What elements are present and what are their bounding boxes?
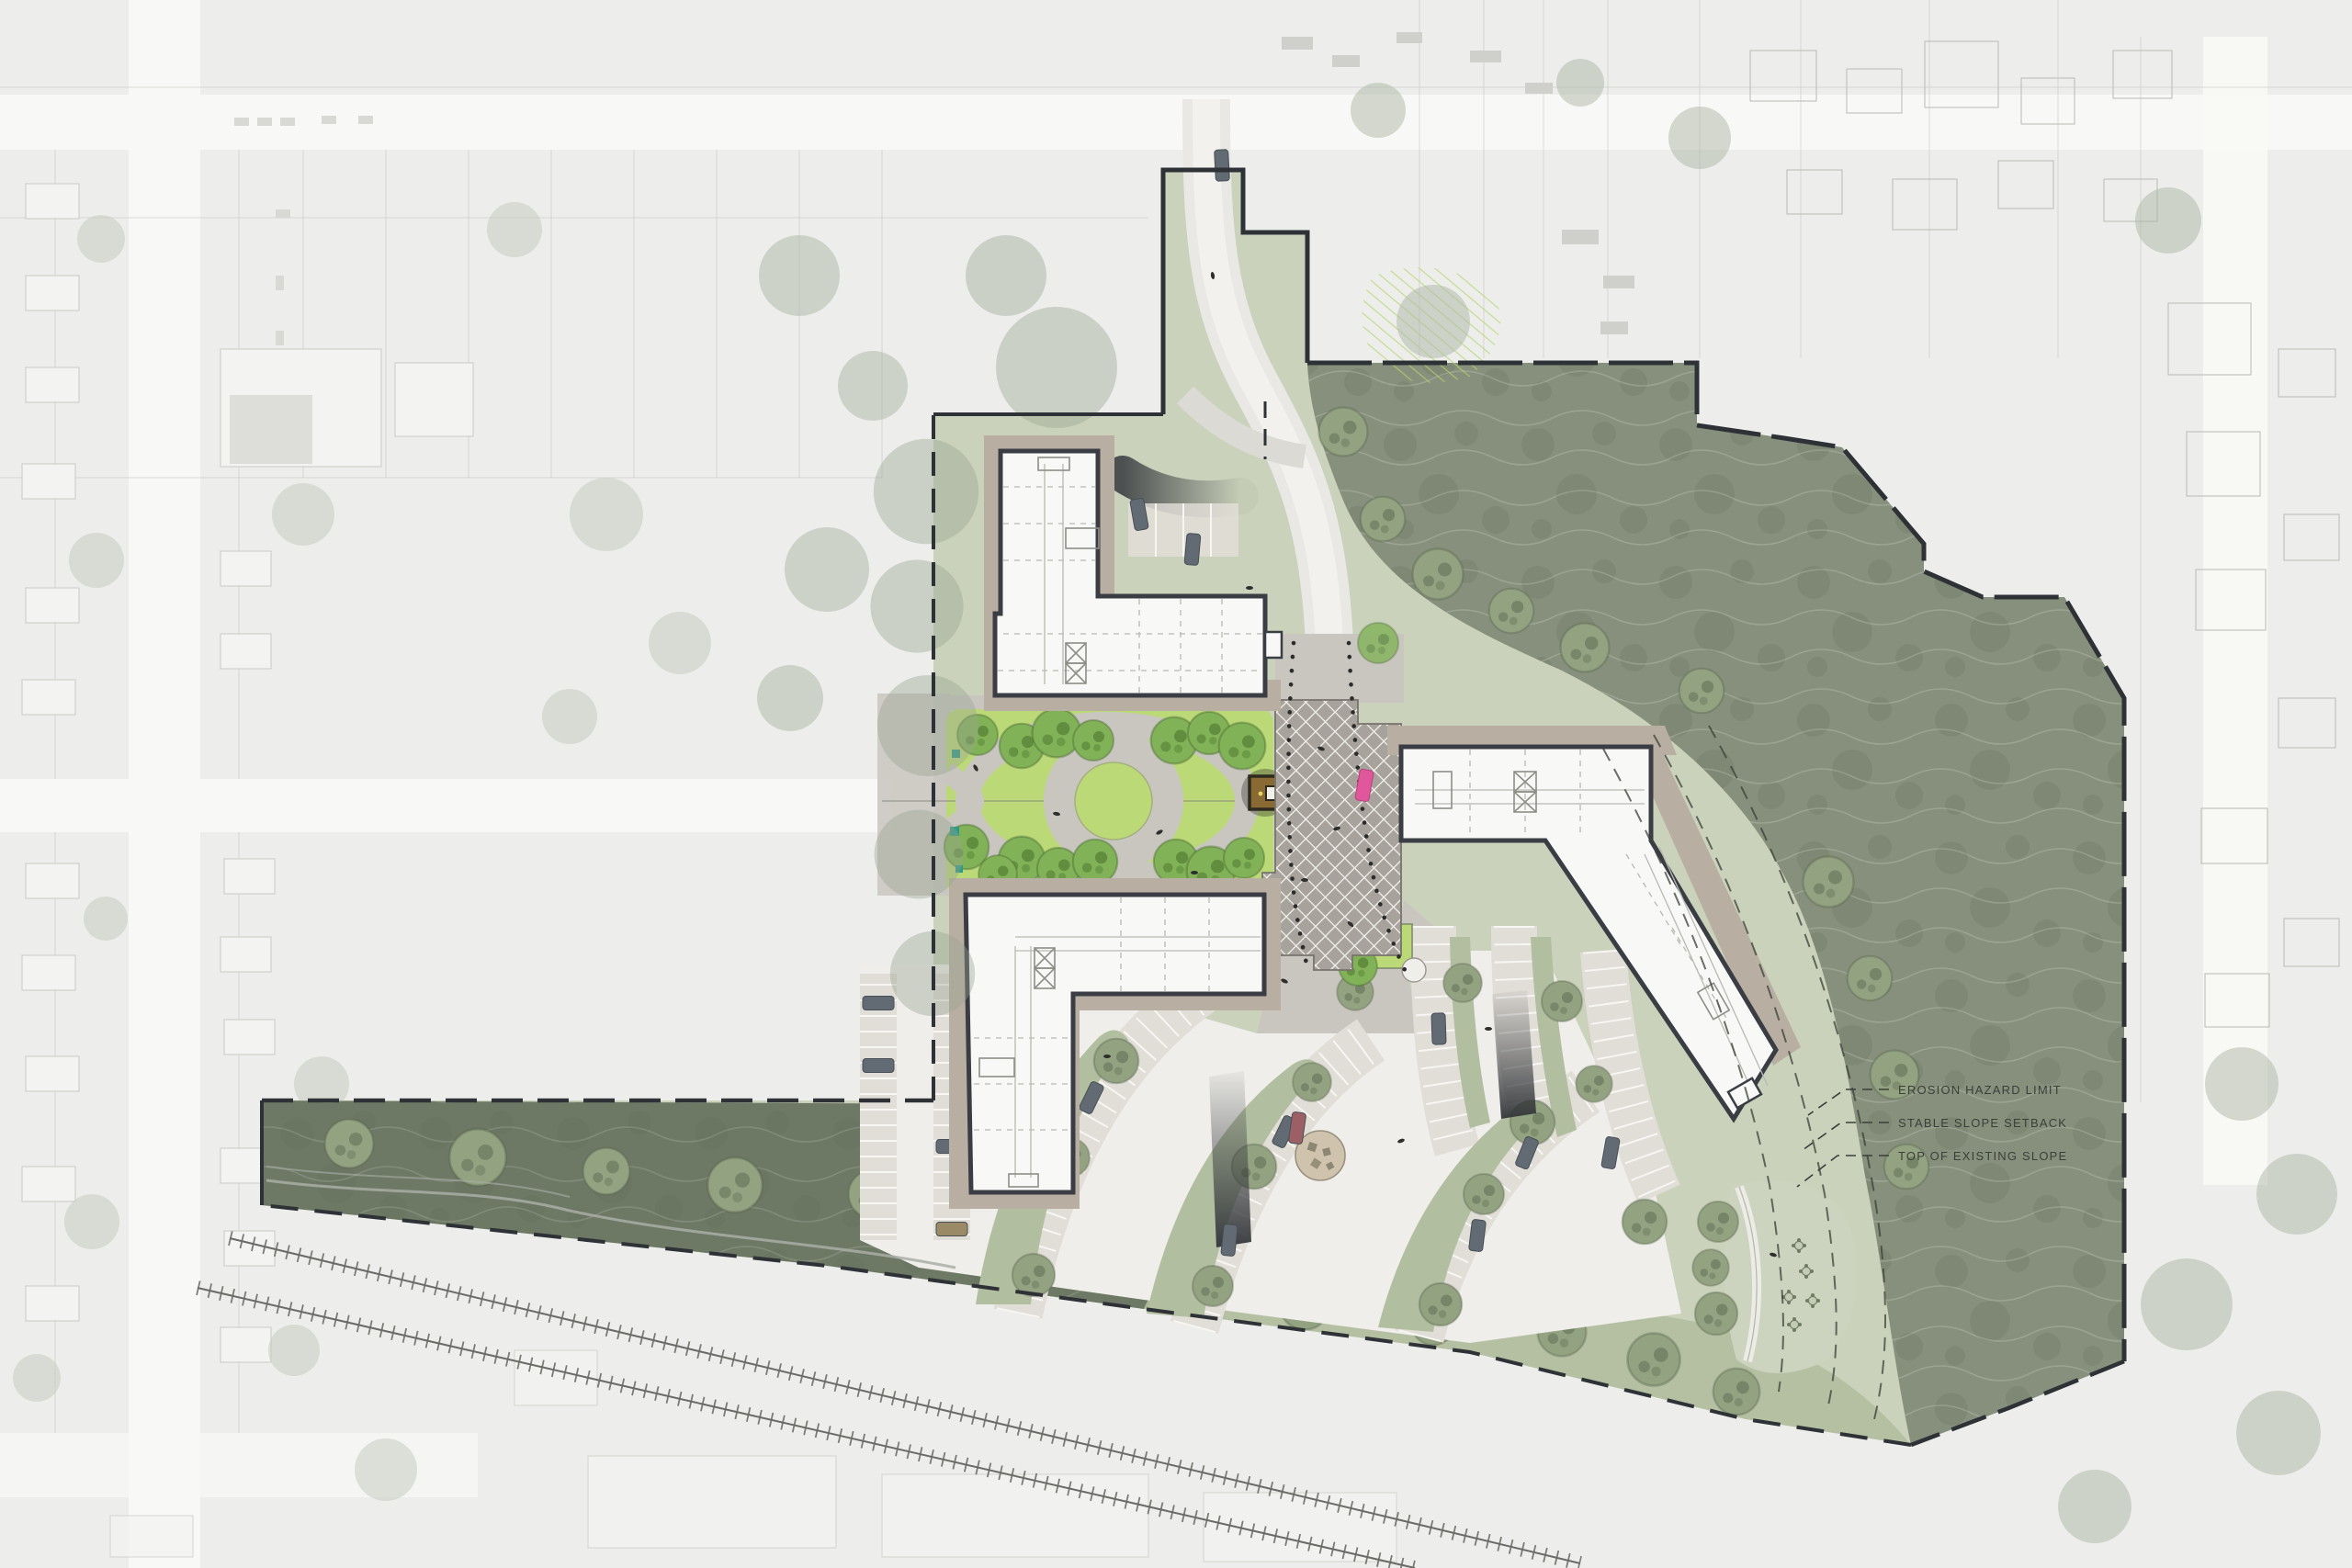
annotation-top-of-slope: TOP OF EXISTING SLOPE — [1898, 1149, 2067, 1163]
garage-ramp — [1209, 1071, 1251, 1247]
site-plan-page: EROSION HAZARD LIMIT STABLE SLOPE SETBAC… — [0, 0, 2352, 1568]
site-plan-drawing: EROSION HAZARD LIMIT STABLE SLOPE SETBAC… — [0, 0, 2352, 1568]
annotation-stable-slope: STABLE SLOPE SETBACK — [1898, 1116, 2067, 1130]
stall-band — [860, 974, 897, 1240]
annotation-erosion-hazard: EROSION HAZARD LIMIT — [1898, 1083, 2062, 1097]
